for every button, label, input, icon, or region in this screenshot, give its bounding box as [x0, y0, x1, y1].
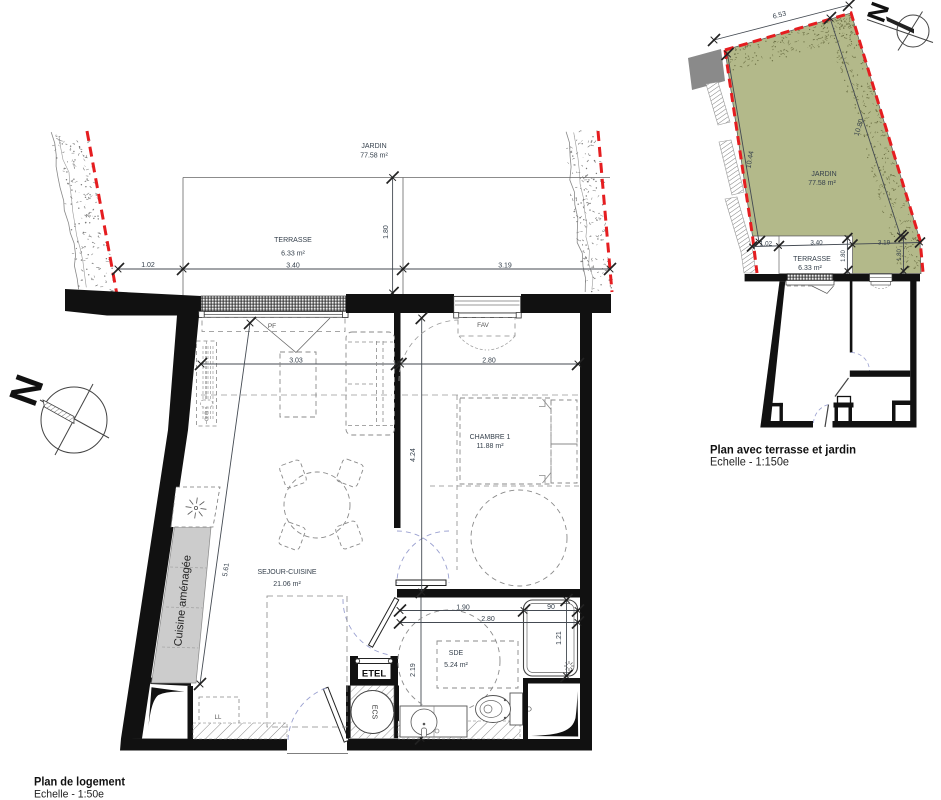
svg-text:Echelle - 1:50e: Echelle - 1:50e [34, 789, 104, 800]
svg-text:6.33 m²: 6.33 m² [281, 251, 305, 258]
svg-text:4.24: 4.24 [410, 448, 417, 462]
svg-text:JARDIN: JARDIN [361, 143, 386, 150]
svg-text:Plan de logement: Plan de logement [34, 775, 125, 789]
svg-text:2.80: 2.80 [482, 358, 496, 365]
svg-text:3.40: 3.40 [810, 240, 823, 247]
svg-text:Echelle - 1:150e: Echelle - 1:150e [710, 455, 789, 469]
svg-text:11.88 m²: 11.88 m² [476, 443, 504, 450]
svg-text:TERRASSE: TERRASSE [274, 237, 312, 244]
svg-text:1.80: 1.80 [383, 225, 390, 239]
svg-text:3.40: 3.40 [286, 262, 300, 269]
svg-text:2.19: 2.19 [410, 663, 417, 677]
svg-text:PF: PF [268, 323, 276, 330]
svg-text:1.02: 1.02 [760, 241, 773, 248]
svg-text:3.03: 3.03 [289, 358, 303, 365]
svg-text:1.80: 1.80 [897, 249, 903, 261]
svg-text:LL: LL [215, 715, 222, 721]
svg-text:77.58 m²: 77.58 m² [360, 153, 388, 160]
svg-text:JARDIN: JARDIN [811, 171, 836, 178]
svg-text:ETEL: ETEL [362, 669, 386, 680]
svg-text:1.21: 1.21 [556, 631, 563, 645]
svg-text:3.19: 3.19 [498, 262, 512, 269]
svg-text:SDE: SDE [449, 650, 464, 657]
svg-text:SEJOUR-CUISINE: SEJOUR-CUISINE [257, 569, 316, 576]
svg-text:2.80: 2.80 [481, 616, 495, 623]
svg-text:3.19: 3.19 [878, 240, 891, 247]
svg-text:6.33 m²: 6.33 m² [798, 265, 822, 272]
svg-text:FAV: FAV [477, 322, 489, 329]
svg-text:77.58 m²: 77.58 m² [808, 180, 836, 187]
svg-text:1.02: 1.02 [141, 262, 155, 269]
svg-text:ECS: ECS [371, 705, 378, 720]
svg-text:90: 90 [547, 604, 555, 611]
svg-text:CHAMBRE 1: CHAMBRE 1 [470, 434, 511, 441]
svg-text:TERRASSE: TERRASSE [793, 256, 831, 263]
svg-text:5.24 m²: 5.24 m² [444, 662, 468, 669]
svg-text:21.06 m²: 21.06 m² [273, 581, 301, 588]
svg-text:1.80: 1.80 [841, 250, 847, 262]
svg-text:1.90: 1.90 [456, 604, 470, 611]
